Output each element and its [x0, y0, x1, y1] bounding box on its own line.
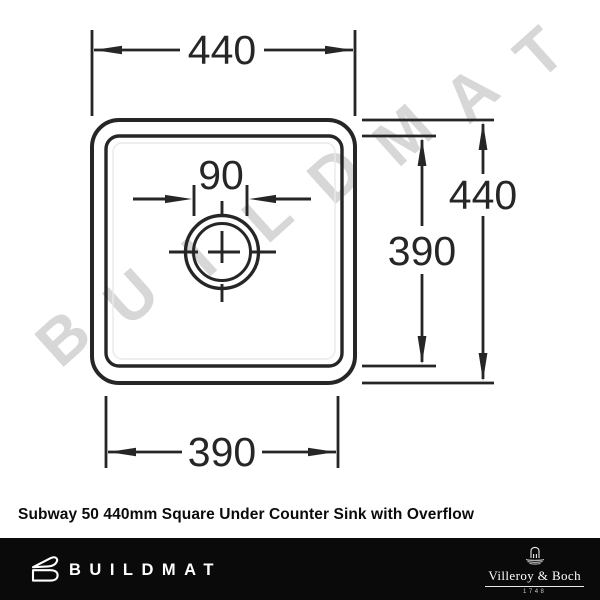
dim-drain-label: 90: [198, 152, 244, 198]
footer-bar: BUILDMAT Villeroy & Boch 1748: [0, 538, 600, 600]
dim-right-outer-label: 440: [449, 172, 517, 218]
dim-top-arrow-right: [325, 46, 353, 54]
dim-bottom-arrow-left: [108, 448, 136, 456]
dim-drain-arrow-left: [249, 195, 276, 203]
dim-top-arrow-left: [94, 46, 122, 54]
villeroy-boch-wordmark: Villeroy & Boch: [485, 567, 584, 587]
dim-right-inner-arrow-down: [418, 336, 427, 364]
sink-dimension-diagram: 440 440 390 390 90: [0, 0, 600, 540]
dim-top-label: 440: [188, 27, 256, 73]
dim-right-outer-arrow-down: [479, 353, 488, 381]
drain-center-mark: [169, 201, 276, 302]
dim-bottom-arrow-right: [308, 448, 336, 456]
villeroy-boch-logo: Villeroy & Boch 1748: [485, 546, 584, 595]
buildmat-logo: BUILDMAT: [29, 554, 222, 584]
villeroy-boch-icon: [522, 546, 548, 566]
drain: [169, 201, 276, 302]
villeroy-boch-year: 1748: [523, 589, 546, 595]
buildmat-icon: [29, 554, 62, 584]
buildmat-wordmark: BUILDMAT: [69, 561, 222, 580]
dim-right-outer-arrow-up: [479, 122, 488, 150]
product-caption: Subway 50 440mm Square Under Counter Sin…: [18, 506, 474, 524]
dim-drain-arrow-right: [165, 195, 192, 203]
dim-bottom-label: 390: [188, 429, 256, 475]
dim-right-inner-label: 390: [388, 228, 456, 274]
dim-right-inner-arrow-up: [418, 138, 427, 166]
